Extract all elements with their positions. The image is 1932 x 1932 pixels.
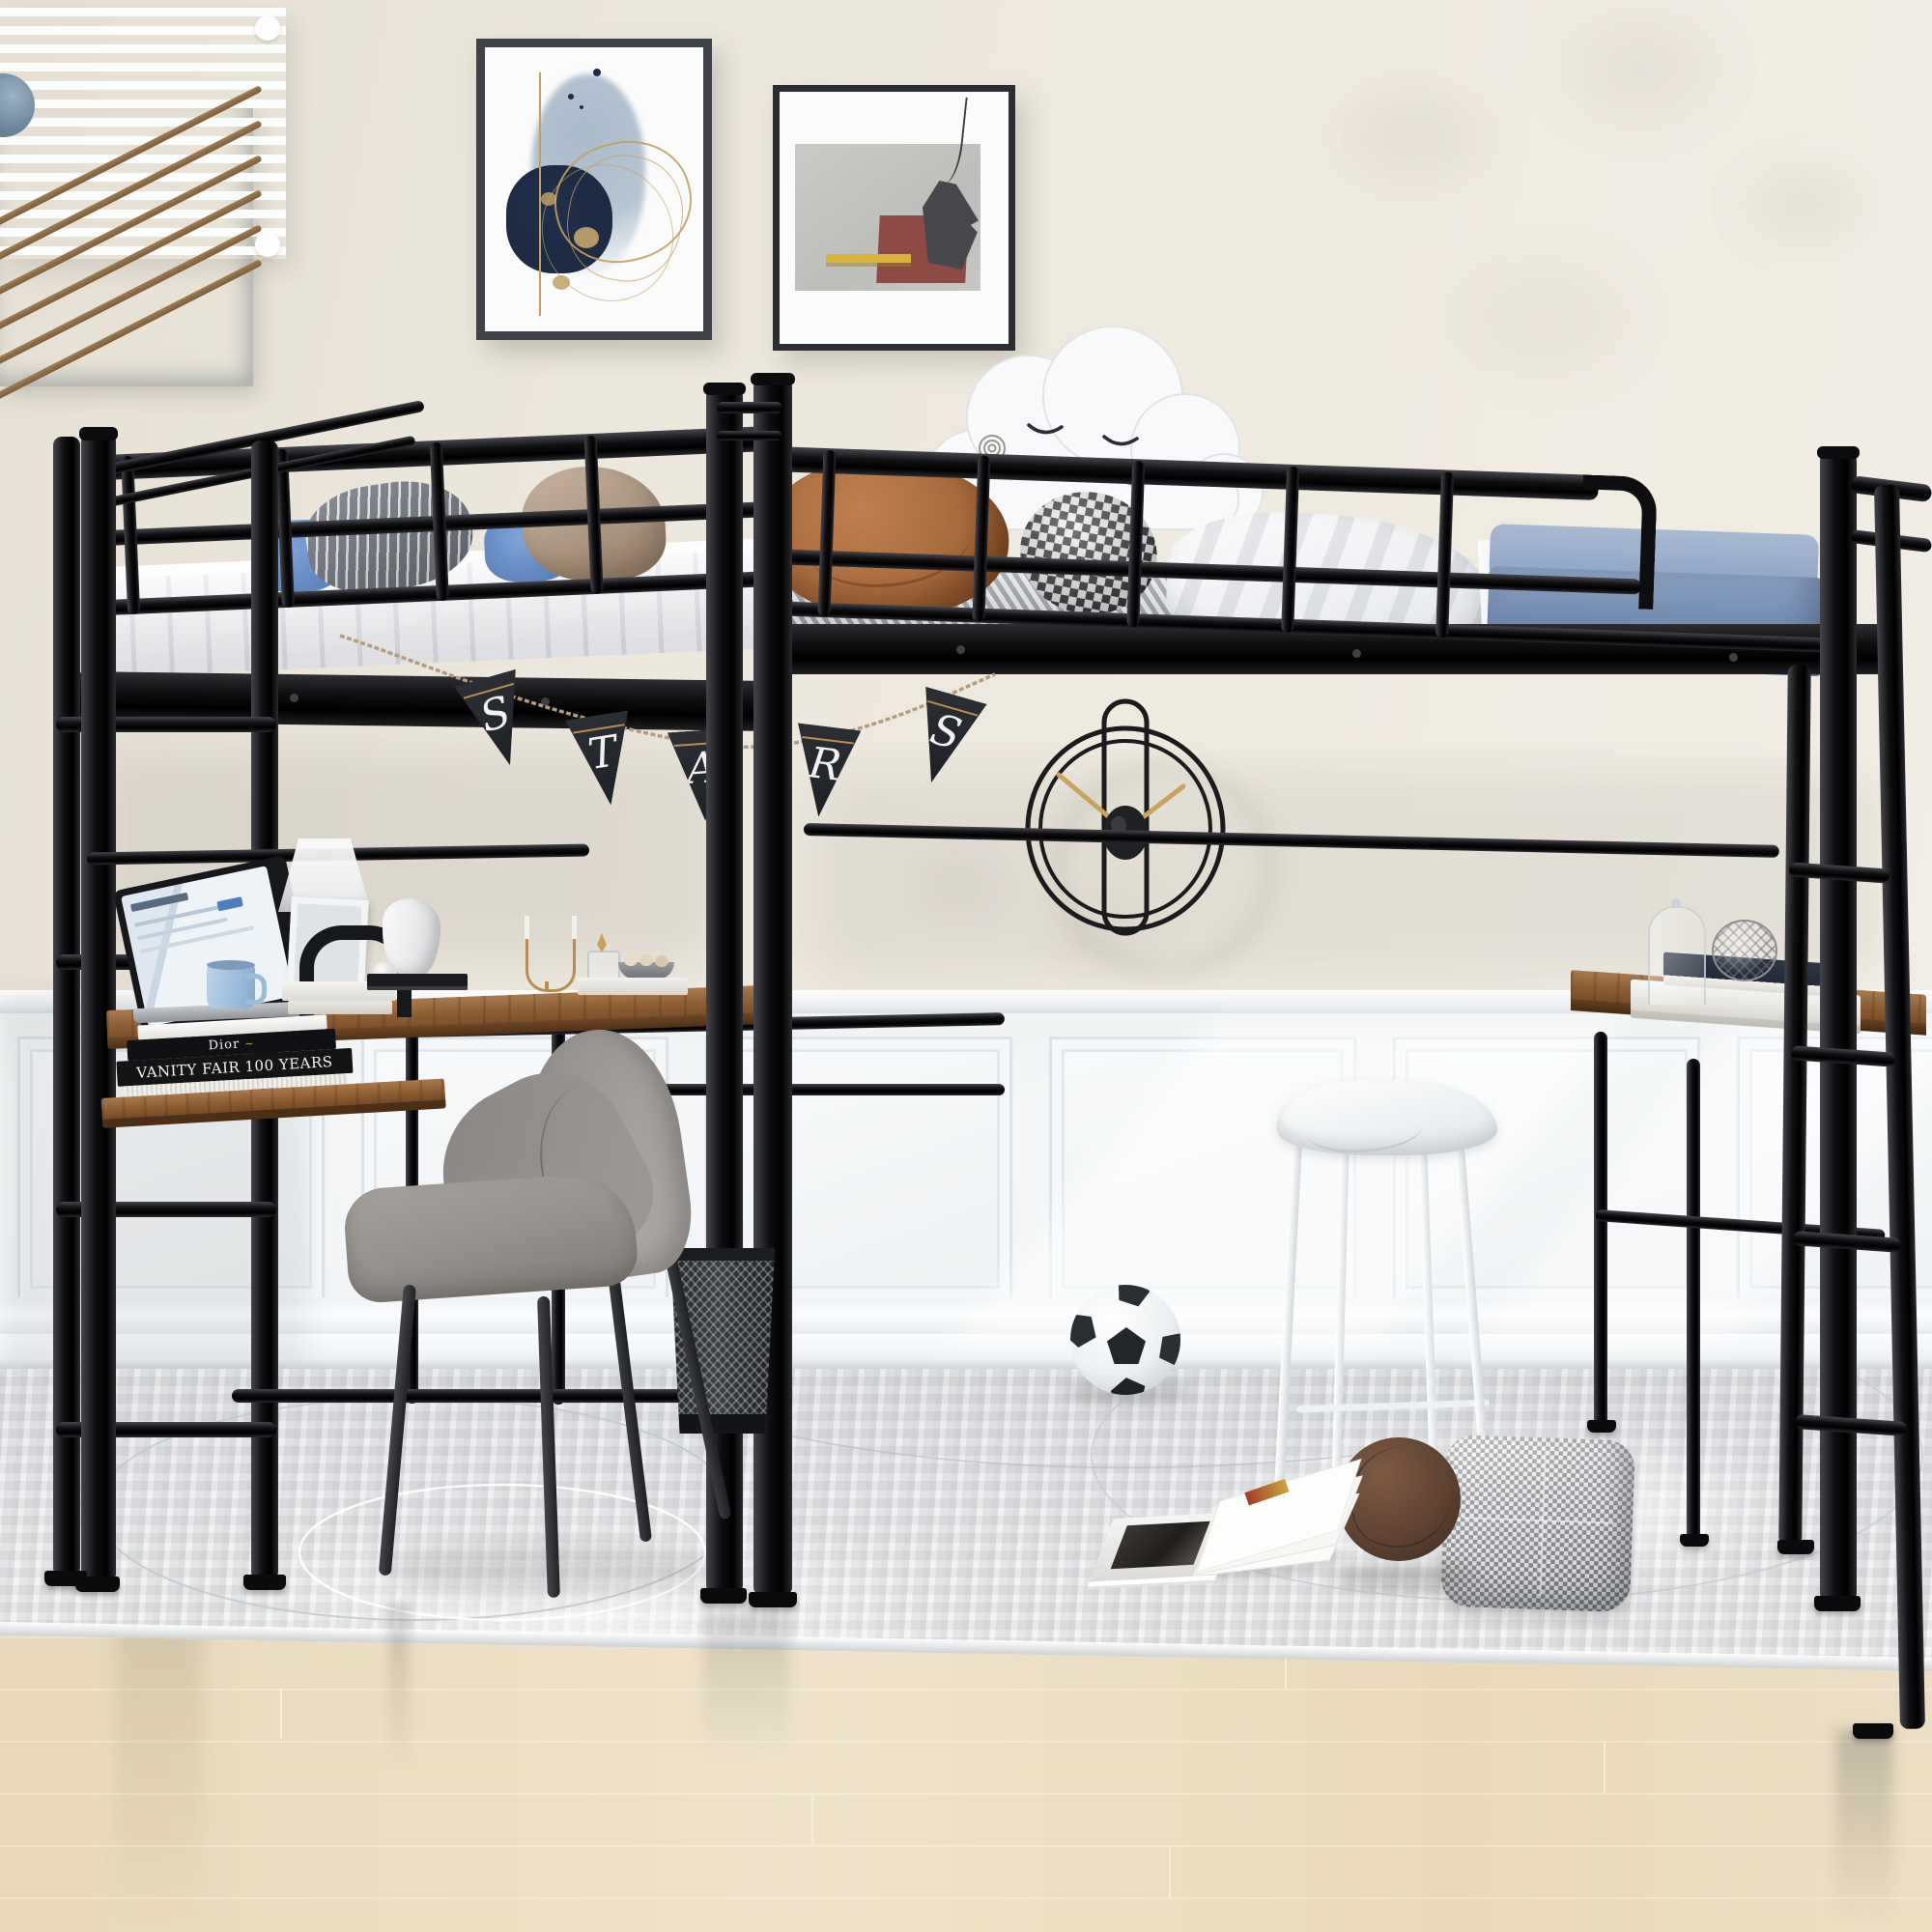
- left-base-bolt-1: [290, 694, 298, 702]
- open-magazine: [1098, 1479, 1351, 1600]
- left-ladder-rail-outer: [53, 437, 80, 1577]
- floor-reflection-left: [116, 1604, 203, 1922]
- center-post-connector-1: [717, 402, 782, 413]
- painting-blue-gold: [476, 39, 712, 340]
- right-desk-leg-2: [1687, 1059, 1700, 1540]
- right-post-foot: [1814, 1596, 1861, 1611]
- center-post-foot-left: [700, 1588, 747, 1604]
- dior-spine-text: Dior: [208, 1037, 240, 1054]
- soccer-pentagon-right: [1153, 1325, 1180, 1369]
- mug: [207, 964, 255, 1009]
- left-bed-post-left: [81, 433, 116, 1582]
- right-desk-foot-2: [1680, 1534, 1709, 1547]
- floor-plank-seam-5: [1169, 1845, 1171, 1899]
- pillow-seam-v: [1539, 1451, 1546, 1595]
- floor-plank-seam-1: [280, 1689, 282, 1739]
- right-rail-vert-1: [817, 450, 836, 616]
- bust-book: [367, 974, 468, 990]
- candelabra-stem: [545, 981, 549, 991]
- soccer-pentagon-center: [1107, 1327, 1146, 1364]
- painting1-ink-dot-1: [593, 69, 601, 76]
- bust-sculpture: [383, 898, 440, 978]
- wall-leaf-shadow-topright: [1285, 0, 1932, 454]
- floor-plank-seam-4: [811, 1793, 813, 1845]
- left-bed-guardrails: [82, 426, 781, 649]
- room-scene: S T A R S: [0, 0, 1932, 1932]
- stripe-panel-screw-bottom: [255, 232, 280, 257]
- right-desk-leg-1: [1594, 1032, 1607, 1426]
- right-post-cap: [1817, 446, 1860, 459]
- pillow-seam-h: [1463, 1518, 1614, 1524]
- left-rail-mid: [85, 501, 776, 547]
- candle-left: [525, 916, 529, 939]
- painting1-ink-dot-3: [580, 105, 583, 109]
- plush-ball-shadow: [1333, 1563, 1478, 1590]
- floor-plank-seam-3: [1604, 1741, 1605, 1793]
- cloche-finial: [1671, 898, 1681, 908]
- center-post-cap-right: [751, 373, 795, 385]
- right-rail-mid: [766, 549, 1641, 595]
- right-desk-foot-1: [1587, 1420, 1616, 1433]
- candelabra: [526, 937, 576, 992]
- painting1-gold-splotch-2: [541, 192, 556, 206]
- right-ladder-foot-inner: [1777, 1540, 1814, 1554]
- floor-reflection-right: [1835, 1729, 1893, 1922]
- right-ladder-foot-outer: [1853, 1723, 1893, 1739]
- painting1-gold-splotch-1: [574, 227, 599, 248]
- right-rail-vert-2: [972, 455, 990, 621]
- candle-right: [572, 916, 577, 939]
- painting1-ink-dot-2: [568, 94, 574, 99]
- center-post-connector-2: [717, 431, 782, 440]
- wire-sphere: [1712, 920, 1777, 981]
- left-post-foot: [75, 1577, 120, 1592]
- floor-reflection-postcluster: [703, 1611, 790, 1756]
- center-post-cap-left: [703, 383, 746, 395]
- left-post-cap: [79, 427, 118, 440]
- left-ladder-foot-inner: [243, 1575, 286, 1590]
- mug-handle: [246, 974, 267, 1005]
- houndstooth-pillow: [1440, 1435, 1635, 1613]
- left-rail-low: [89, 571, 780, 616]
- soccer-ball: [1070, 1285, 1180, 1395]
- center-post-foot-right: [749, 1592, 797, 1607]
- right-rail-vert-5: [1435, 471, 1454, 638]
- chair-seat: [342, 1171, 639, 1305]
- laptop-ui-accent: [216, 896, 243, 911]
- painting2-gold-bar: [826, 254, 911, 263]
- dior-gold-script: ~: [244, 1037, 255, 1051]
- right-rail-vert-3: [1126, 461, 1145, 627]
- mug-rim: [207, 960, 255, 970]
- shelf-group: Dior ~ VANITY FAIR 100 YEARS: [97, 1002, 451, 1148]
- area-rug: [0, 1369, 1932, 1674]
- painting1-gold-splotch-3: [553, 275, 570, 290]
- bowl-eggs: [624, 954, 638, 966]
- stripe-panel-screw-top: [255, 15, 280, 41]
- laptop-ui-bar: [130, 893, 188, 912]
- painting1-gold-line: [539, 72, 541, 316]
- soccer-pentagon-top: [1113, 1285, 1153, 1309]
- right-rail-vert-4: [1281, 467, 1299, 633]
- bowl-book-stack: [578, 978, 688, 995]
- wastebasket-base: [671, 1414, 774, 1434]
- soccer-pentagon-bottom: [1109, 1376, 1148, 1395]
- glass-cloche: [1648, 906, 1706, 1005]
- floor-reflection-chair: [388, 1604, 410, 1768]
- laptop-ui-line-3: [140, 925, 254, 953]
